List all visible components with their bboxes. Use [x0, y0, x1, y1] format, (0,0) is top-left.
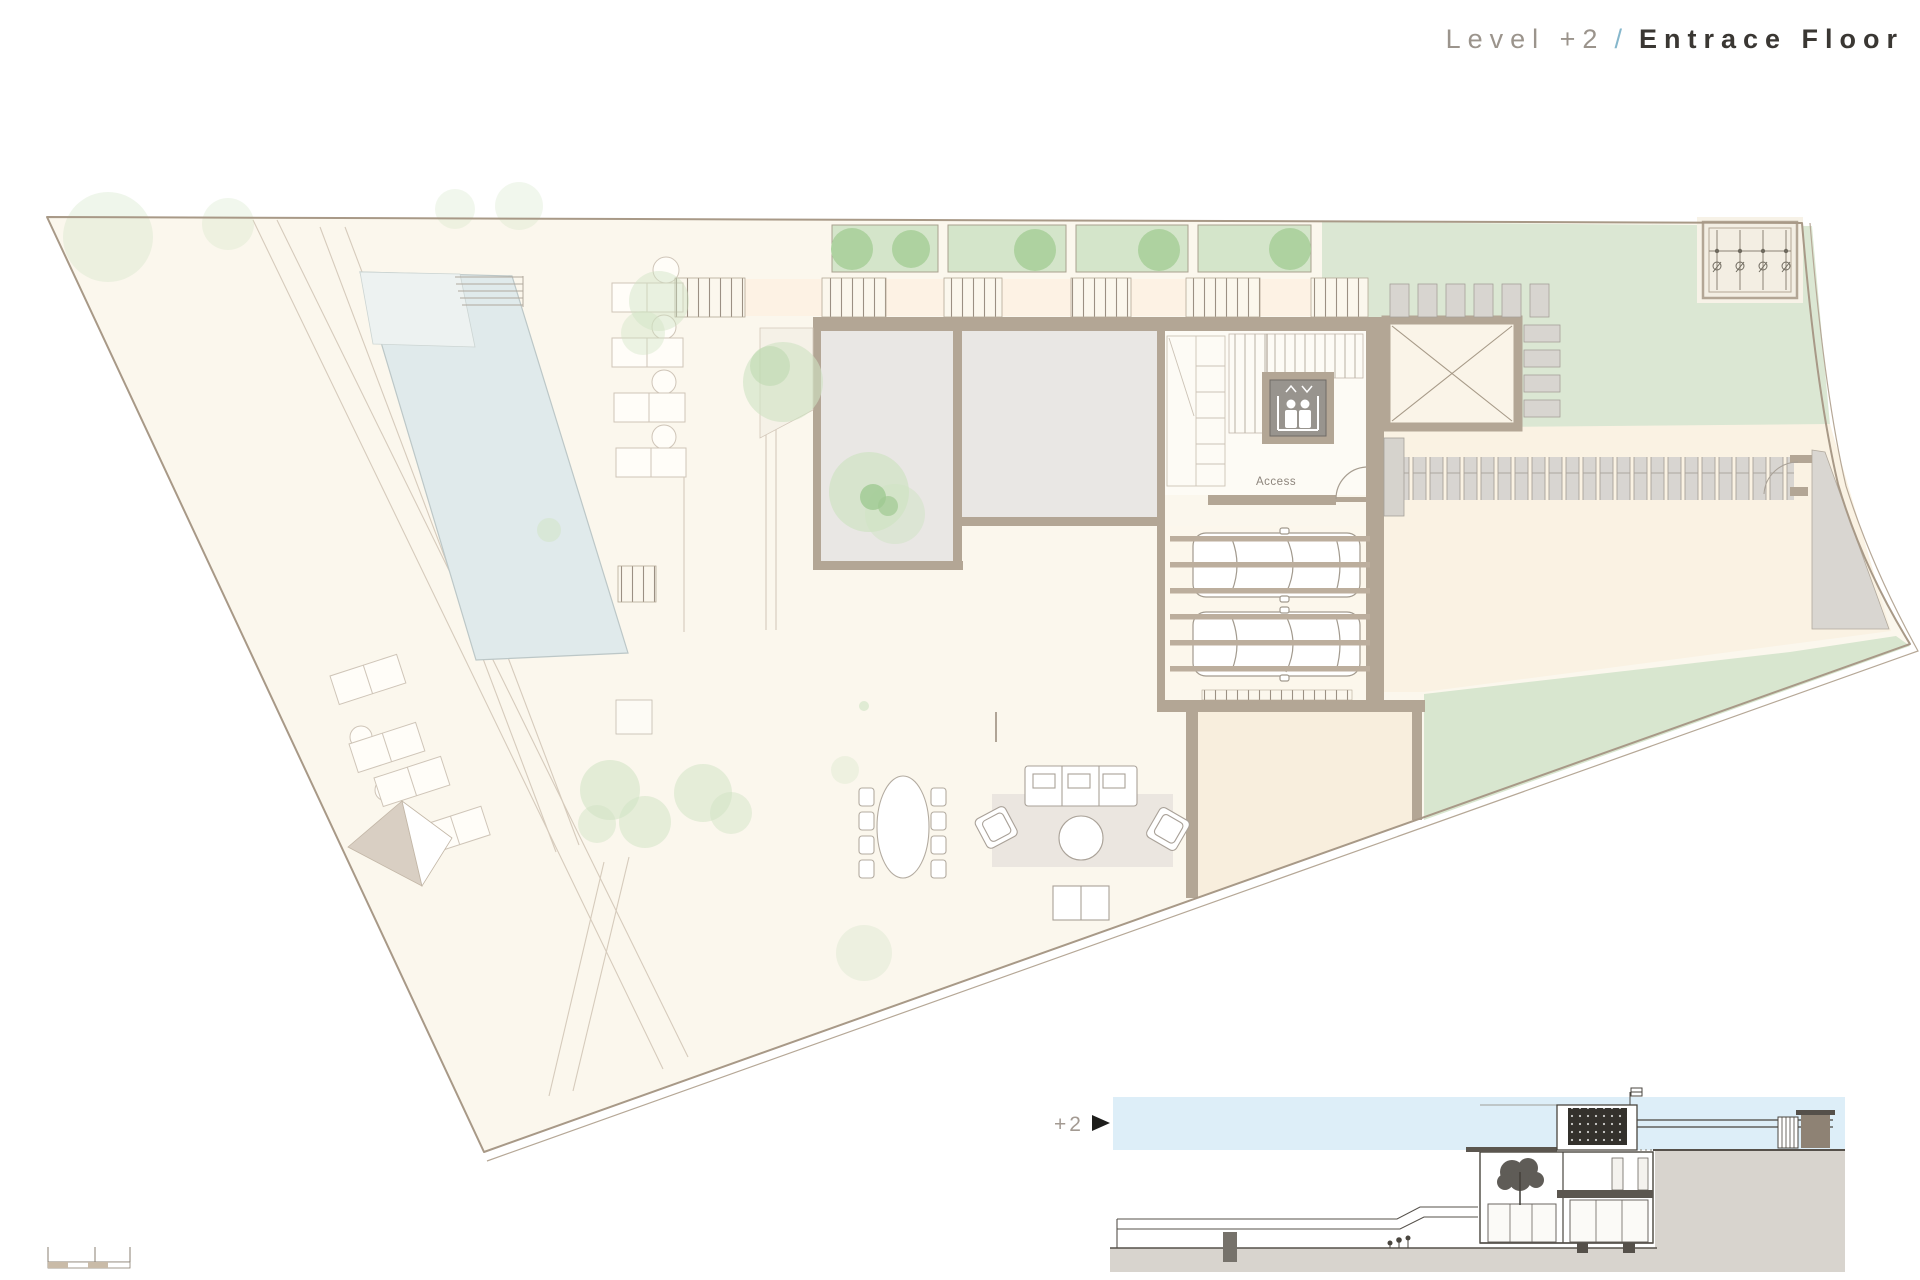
- section-mid-slab: [1557, 1190, 1653, 1198]
- scale-bar: [48, 1247, 130, 1268]
- side-bench: [1053, 886, 1109, 920]
- terrace-room-floor: [1198, 712, 1420, 897]
- dining-set: [859, 776, 946, 878]
- section-pier: [1223, 1232, 1237, 1262]
- section-ground-right: [1655, 1150, 1845, 1272]
- section-drawing: +2: [1054, 1088, 1845, 1272]
- section-ground-left: [1110, 1248, 1657, 1272]
- section-sky: [1113, 1097, 1845, 1150]
- section-left-roof: [1466, 1147, 1557, 1152]
- section-level-label: +2: [1054, 1113, 1084, 1136]
- access-label: Access: [1256, 476, 1296, 488]
- coffee-table: [1059, 816, 1103, 860]
- trellis-pergola: [1697, 217, 1803, 303]
- section-plants: [1388, 1236, 1411, 1249]
- deck-hatch-strip: [675, 278, 1368, 317]
- vent-shaft-hatched: [618, 566, 656, 602]
- elevator: [1262, 372, 1334, 444]
- vent-shaft-plain: [616, 700, 652, 734]
- sofa: [1025, 766, 1137, 806]
- skylight-room: [1386, 320, 1518, 427]
- section-terrace: [1117, 1207, 1478, 1248]
- site-plan: Access: [47, 182, 1918, 1161]
- floor-plan-drawing: Access: [0, 0, 1920, 1280]
- garage-threshold: [1384, 438, 1404, 516]
- pool-shallow-ledge: [360, 272, 475, 347]
- room-right: [960, 328, 1158, 522]
- garage-edge-hatch: [1202, 690, 1352, 700]
- stepping-stones: [1402, 457, 1794, 500]
- entry-apron: [1812, 450, 1889, 629]
- right-arrow-triangle-icon: [1092, 1115, 1110, 1131]
